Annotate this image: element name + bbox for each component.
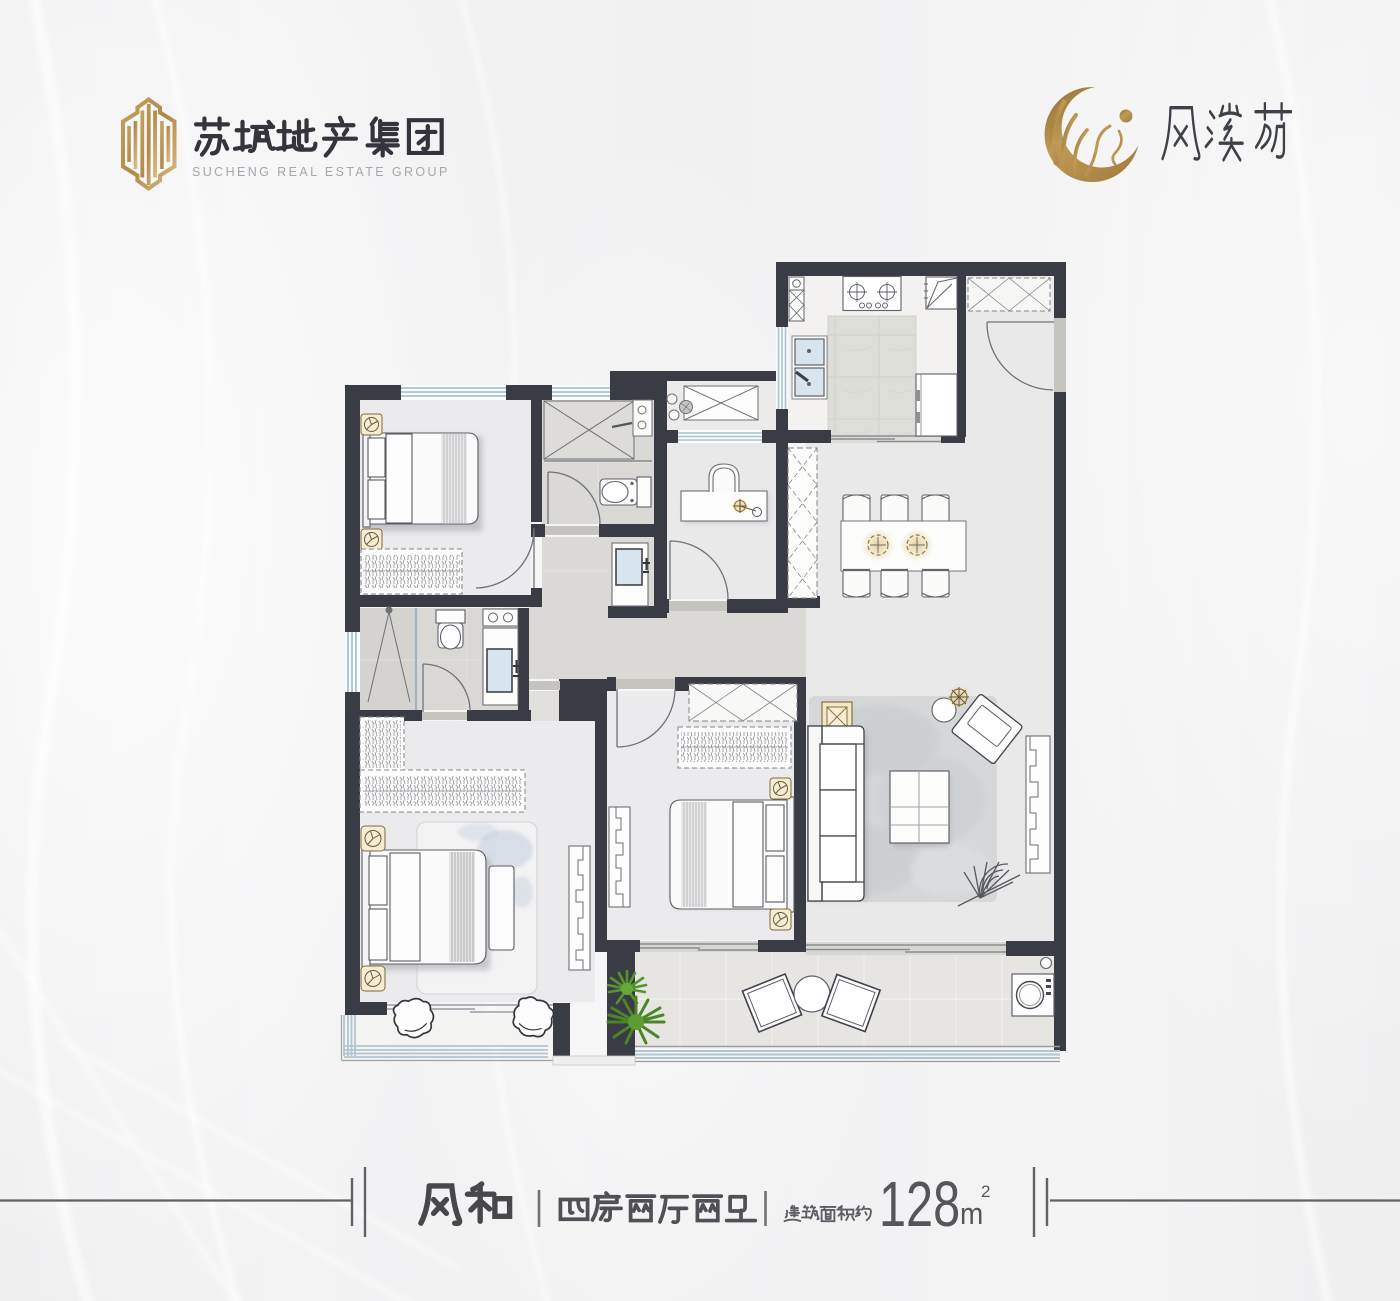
- svg-text:2: 2: [981, 1182, 990, 1201]
- svg-text:m: m: [960, 1197, 983, 1232]
- svg-text:SUCHENG REAL ESTATE GROUP: SUCHENG REAL ESTATE GROUP: [192, 165, 450, 179]
- svg-text:128: 128: [879, 1170, 960, 1241]
